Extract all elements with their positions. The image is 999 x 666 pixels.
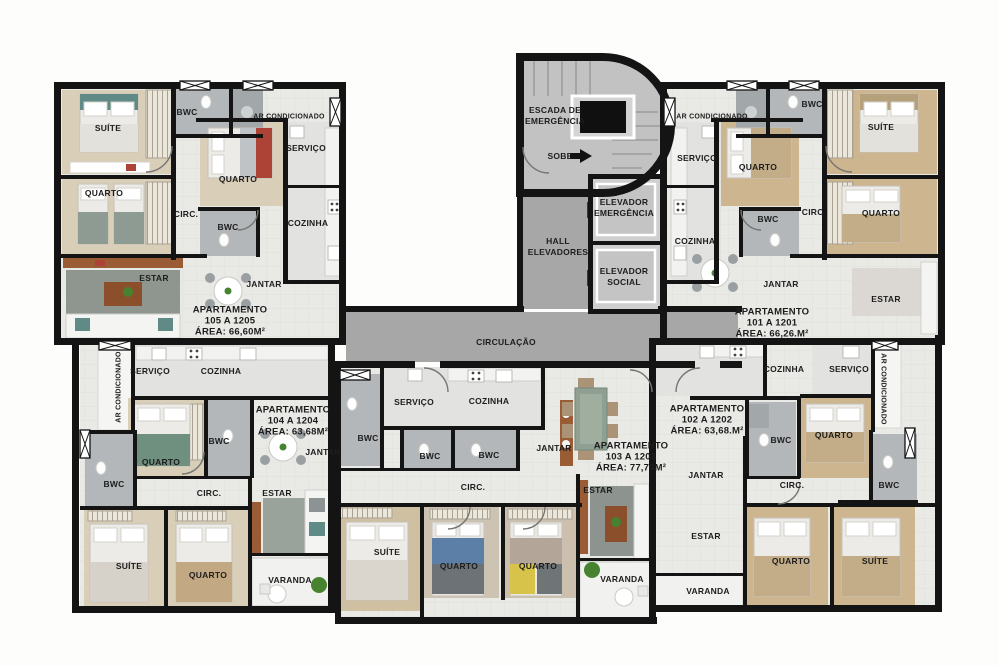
apartment-104-servico-label: SERVIÇO xyxy=(130,366,170,376)
apartment-101-bwc-label: BWC xyxy=(757,214,778,224)
apartment-104-suite-label: SUÍTE xyxy=(116,561,142,571)
apartment-103-bwc-label: BWC xyxy=(357,433,378,443)
apartment-104-circ-label: CIRC. xyxy=(197,488,221,498)
apartment-104-bwc-label: BWC xyxy=(103,479,124,489)
apartment-102-circ-label: CIRC. xyxy=(780,480,804,490)
apartment-101-jantar-label: JANTAR xyxy=(763,279,798,289)
apartment-103-quarto-label: QUARTO xyxy=(519,561,557,571)
apartment-105-circ-label: CIRC. xyxy=(174,209,198,219)
apartment-102-info-line-3: ÁREA: 63,68.M² xyxy=(670,426,743,437)
apartment-104-info-line-1: APARTAMENTO xyxy=(256,405,331,416)
apartment-103-estar-label: ESTAR xyxy=(583,485,612,495)
core-circulacao-label: CIRCULAÇÃO xyxy=(476,337,536,347)
apartment-101-cozinha-label: COZINHA xyxy=(675,236,715,246)
apartment-105-bwc-label: BWC xyxy=(217,222,238,232)
apartment-104-ar-condicionado-label: AR CONDICIONADO xyxy=(116,351,123,422)
apartment-105-ar-condicionado-label: AR CONDICIONADO xyxy=(253,114,324,121)
apartment-102-quarto-label: QUARTO xyxy=(772,556,810,566)
core-emergencia-label: EMERGÊNCIA xyxy=(594,208,654,218)
apartment-102-cozinha-label: COZINHA xyxy=(764,364,804,374)
apartment-102-info-line-1: APARTAMENTO xyxy=(670,404,745,415)
apartment-101-bwc-label: BWC xyxy=(801,99,822,109)
apartment-105-info-line-1: APARTAMENTO xyxy=(193,305,268,316)
apartment-102-ar-condicionado-label: AR CONDICIONADO xyxy=(880,353,887,424)
apartment-104-jantar-label: JANTAR xyxy=(305,447,340,457)
apartment-103-jantar-label: JANTAR xyxy=(536,443,571,453)
apartment-103-suite-label: SUÍTE xyxy=(374,547,400,557)
labels-layer: ESCADA DEEMERGÊNCIASOBEHALLELEVADORESELE… xyxy=(0,0,999,666)
apartment-103-quarto-label: QUARTO xyxy=(440,561,478,571)
apartment-105-cozinha-label: COZINHA xyxy=(288,218,328,228)
apartment-104-estar-label: ESTAR xyxy=(262,488,291,498)
apartment-105-quarto-label: QUARTO xyxy=(219,174,257,184)
apartment-102-jantar-label: JANTAR xyxy=(688,470,723,480)
core-elevador-label: ELEVADOR xyxy=(600,266,649,276)
apartment-102-servico-label: SERVIÇO xyxy=(829,364,869,374)
core-emergencia-label: EMERGÊNCIA xyxy=(525,116,585,126)
core-elevador-label: ELEVADOR xyxy=(600,197,649,207)
apartment-103-info-line-2: 103 A 1203 xyxy=(606,452,656,463)
apartment-103-cozinha-label: COZINHA xyxy=(469,396,509,406)
apartment-105-suite-label: SUÍTE xyxy=(95,123,121,133)
apartment-101-quarto-label: QUARTO xyxy=(862,208,900,218)
apartment-101-estar-label: ESTAR xyxy=(871,294,900,304)
apartment-103-info-line-1: APARTAMENTO xyxy=(594,441,669,452)
apartment-102-bwc-label: BWC xyxy=(770,435,791,445)
apartment-101-quarto-label: QUARTO xyxy=(739,162,777,172)
apartment-105-jantar-label: JANTAR xyxy=(246,279,281,289)
apartment-103-bwc-label: BWC xyxy=(419,451,440,461)
apartment-104-bwc-label: BWC xyxy=(208,436,229,446)
apartment-104-cozinha-label: COZINHA xyxy=(201,366,241,376)
apartment-102-suite-label: SUÍTE xyxy=(862,556,888,566)
apartment-104-quarto-label: QUARTO xyxy=(189,570,227,580)
apartment-101-circ-label: CIRC. xyxy=(802,207,826,217)
apartment-103-circ-label: CIRC. xyxy=(461,482,485,492)
apartment-101-info-line-1: APARTAMENTO xyxy=(735,307,810,318)
apartment-102-info-line-2: 102 A 1202 xyxy=(682,415,732,426)
apartment-105-bwc-label: BWC xyxy=(176,107,197,117)
apartment-101-servico-label: SERVIÇO xyxy=(677,153,717,163)
core-social-label: SOCIAL xyxy=(607,277,641,287)
apartment-102-quarto-label: QUARTO xyxy=(815,430,853,440)
apartment-102-varanda-label: VARANDA xyxy=(686,586,730,596)
apartment-103-varanda-label: VARANDA xyxy=(600,574,644,584)
apartment-101-info-line-2: 101 A 1201 xyxy=(747,318,797,329)
floor-plan: ESCADA DEEMERGÊNCIASOBEHALLELEVADORESELE… xyxy=(0,0,999,666)
apartment-104-varanda-label: VARANDA xyxy=(268,575,312,585)
core-sobe-label: SOBE xyxy=(547,151,572,161)
apartment-101-info-line-3: ÁREA: 66,26.M² xyxy=(735,329,808,340)
apartment-105-estar-label: ESTAR xyxy=(139,273,168,283)
apartment-104-info-line-3: ÁREA: 63,68M² xyxy=(258,427,328,438)
apartment-102-estar-label: ESTAR xyxy=(691,531,720,541)
core-hall-label: HALL xyxy=(546,236,570,246)
apartment-105-quarto-label: QUARTO xyxy=(85,188,123,198)
core-escada-de-label: ESCADA DE xyxy=(529,105,581,115)
apartment-105-info-line-2: 105 A 1205 xyxy=(205,316,255,327)
apartment-105-info-line-3: ÁREA: 66,60M² xyxy=(195,327,265,338)
apartment-103-info-line-3: ÁREA: 77,74M² xyxy=(596,463,666,474)
core-elevadores-label: ELEVADORES xyxy=(528,247,588,257)
apartment-104-info-line-2: 104 A 1204 xyxy=(268,416,318,427)
apartment-104-quarto-label: QUARTO xyxy=(142,457,180,467)
apartment-101-suite-label: SUÍTE xyxy=(868,122,894,132)
apartment-103-bwc-label: BWC xyxy=(478,450,499,460)
apartment-101-ar-condicionado-label: AR CONDICIONADO xyxy=(676,114,747,121)
apartment-105-servico-label: SERVIÇO xyxy=(286,143,326,153)
apartment-102-bwc-label: BWC xyxy=(878,480,899,490)
apartment-103-servico-label: SERVIÇO xyxy=(394,397,434,407)
